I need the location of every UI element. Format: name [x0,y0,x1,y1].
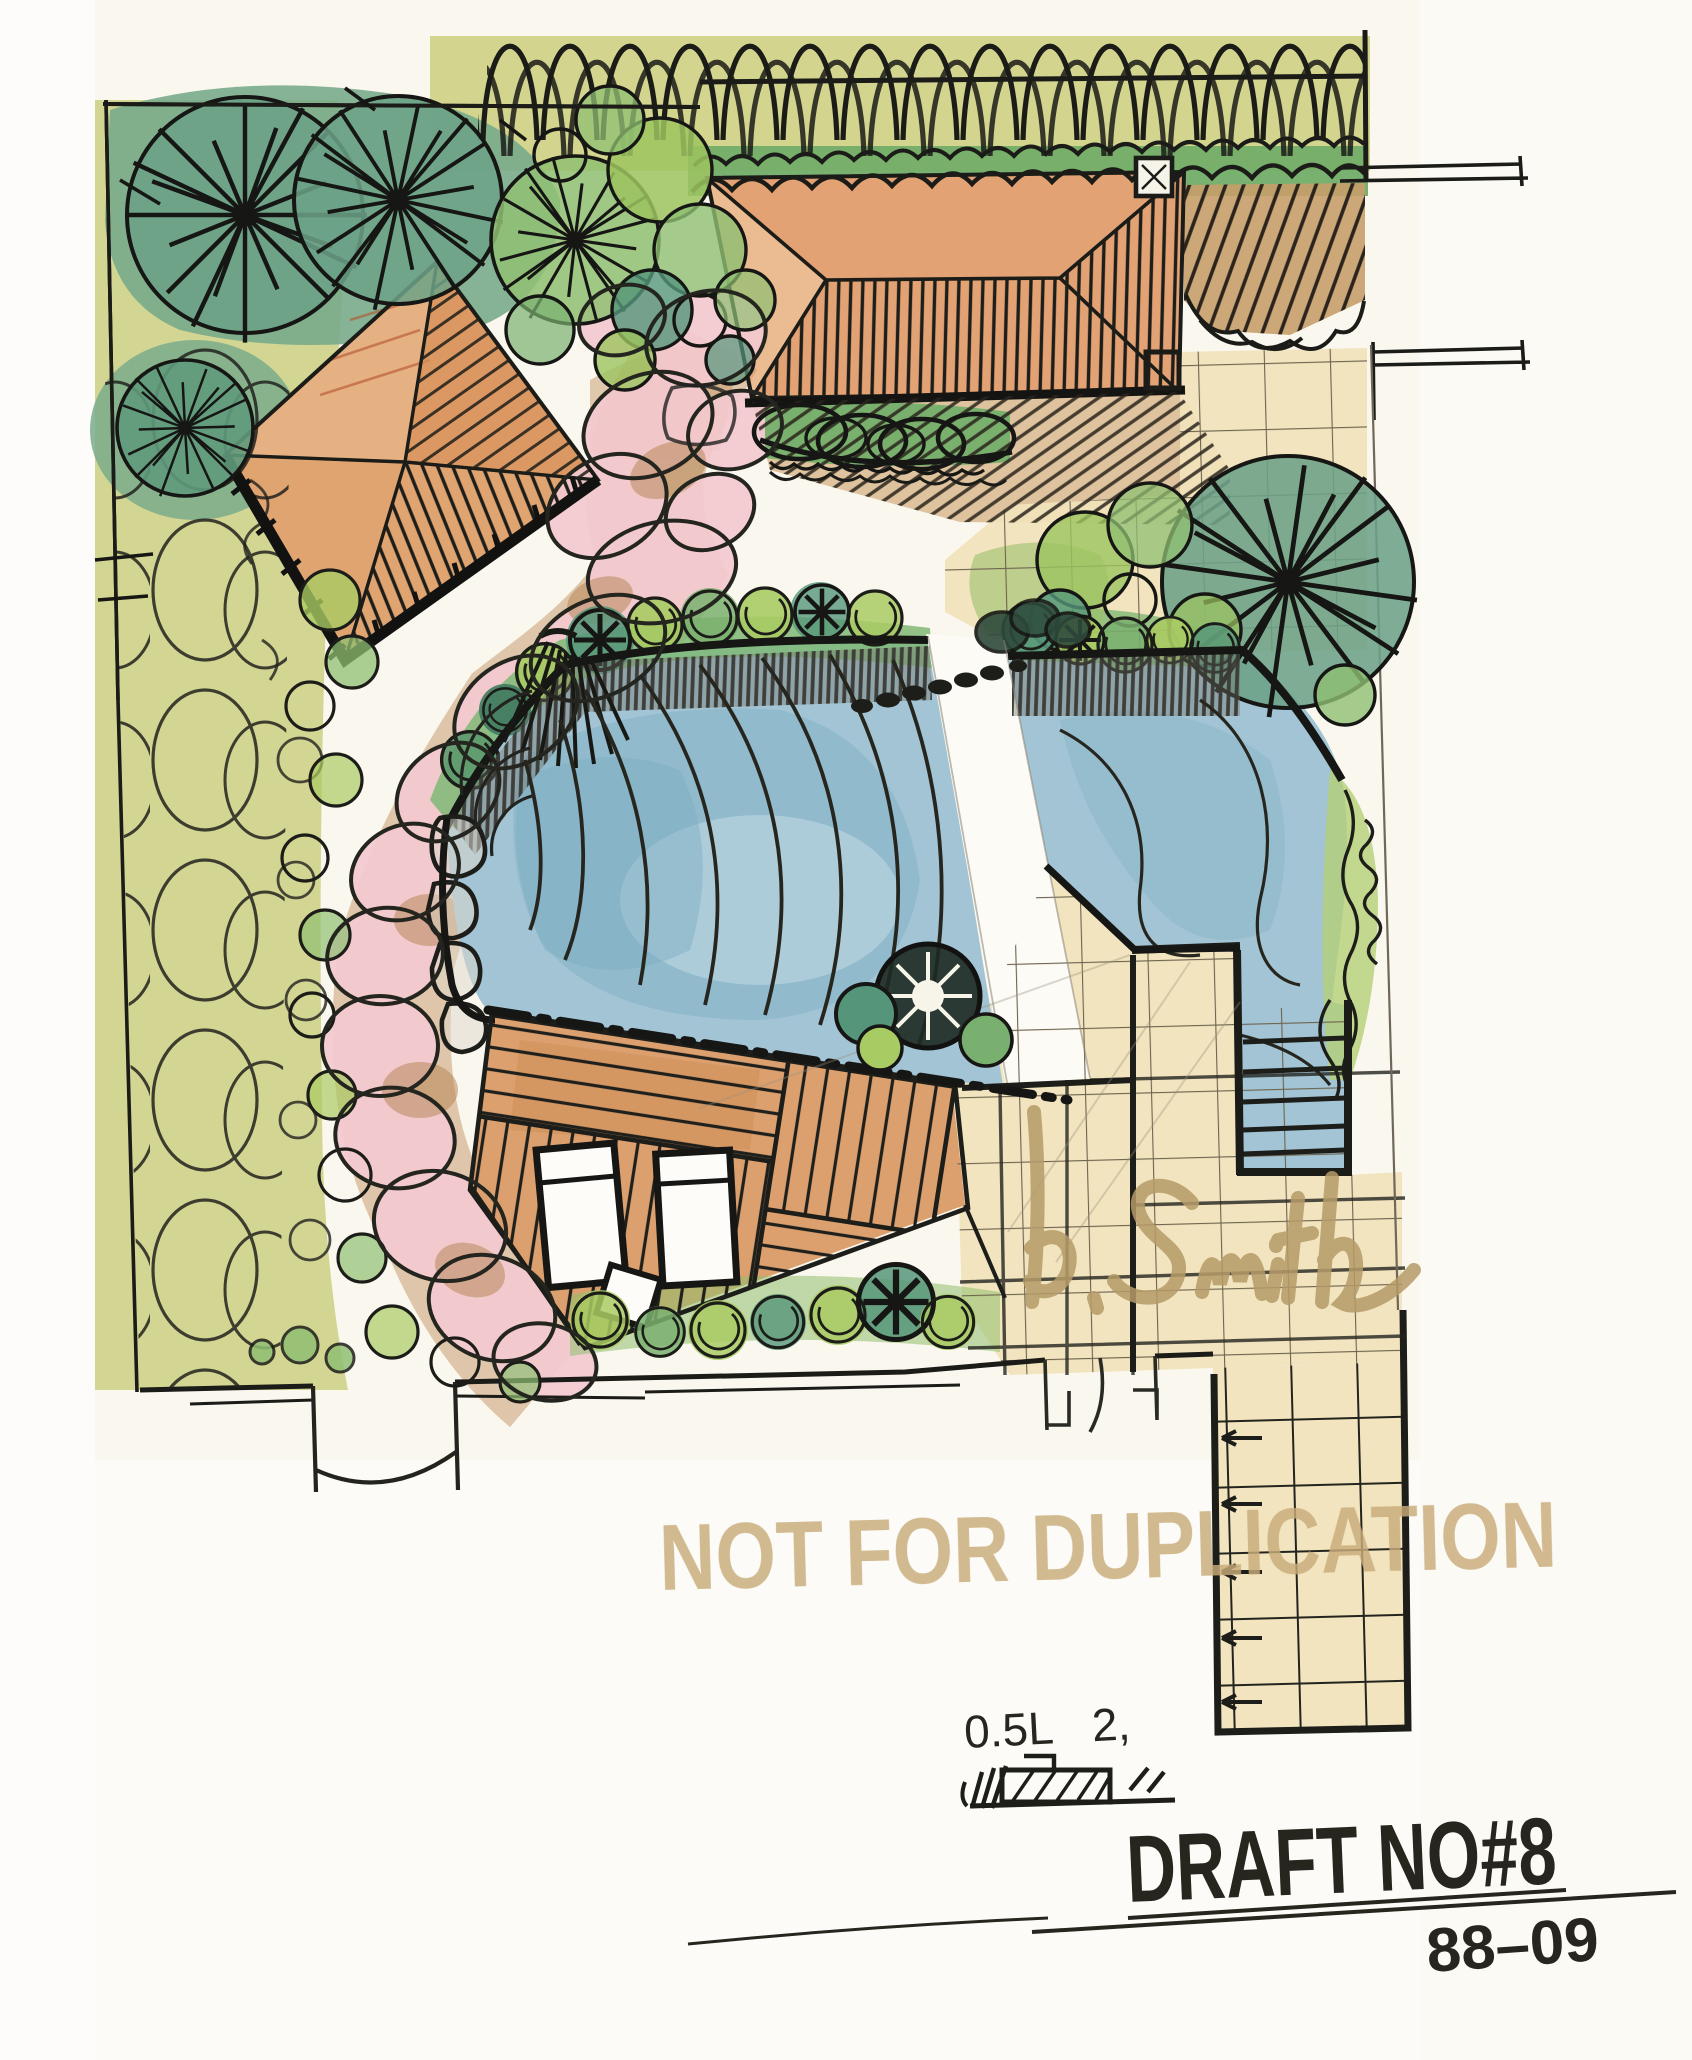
svg-text:0.5L 2,: 0.5L 2, [963,1697,1132,1758]
svg-text:88–09: 88–09 [1424,1905,1601,1986]
